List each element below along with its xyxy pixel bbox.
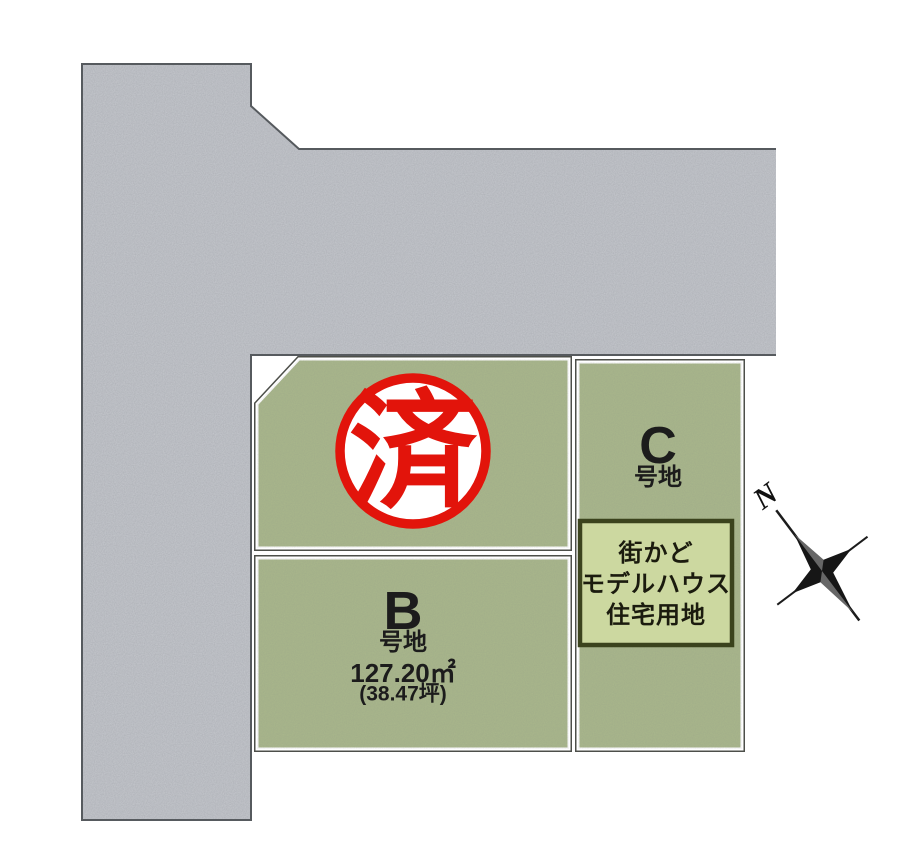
plot-c-unit-label: 号地 [634, 466, 682, 490]
model-house-sign-line-2: モデルハウス [581, 573, 731, 597]
north-label: N [746, 476, 785, 517]
model-house-sign-line-1: 街かど [619, 542, 694, 566]
sold-stamp-label: 済 [349, 389, 477, 517]
plot-b-area-tsubo: (38.47坪) [359, 684, 447, 705]
plot-b-unit-label: 号地 [379, 631, 427, 655]
site-plan: N 済 B 号地 127.20㎡ (38.47坪) C 号地 街かど モデルハウ… [0, 0, 900, 857]
model-house-sign-line-3: 住宅用地 [606, 604, 706, 628]
